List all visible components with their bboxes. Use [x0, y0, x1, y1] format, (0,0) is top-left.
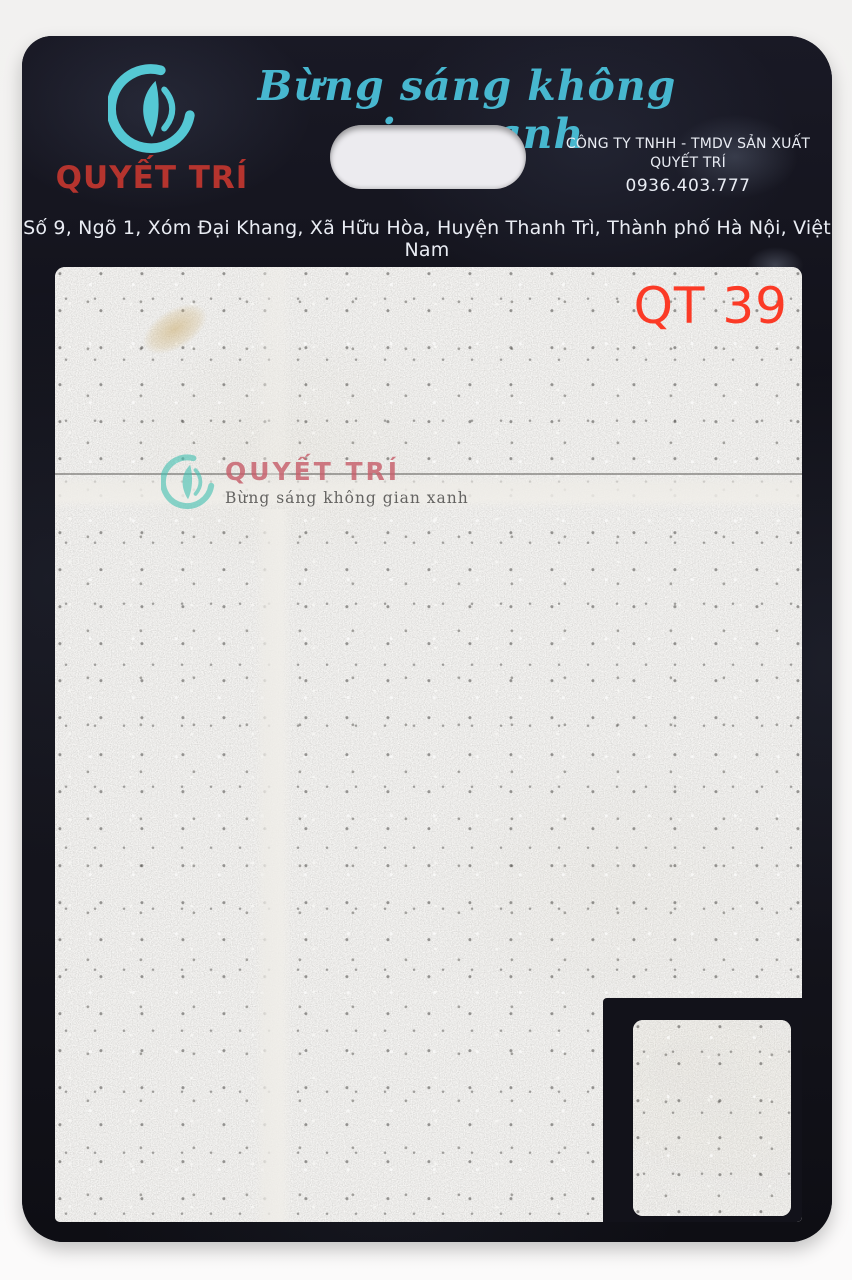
sample-board: QUYẾT TRÍ Bừng sáng không gian xanh CÔNG…	[22, 36, 832, 1242]
corner-sample-tile	[633, 1020, 791, 1216]
grout-line-vertical-upper	[255, 267, 292, 475]
grout-line-vertical-lower	[255, 509, 292, 1222]
brand-watermark: QUYẾT TRÍ Bừng sáng không gian xanh	[161, 453, 469, 511]
watermark-slogan: Bừng sáng không gian xanh	[225, 489, 469, 507]
phone-number: 0936.403.777	[540, 176, 832, 196]
brand-name: QUYẾT TRÍ	[50, 160, 254, 196]
corner-notch	[603, 998, 802, 1222]
stone-panel: QUYẾT TRÍ Bừng sáng không gian xanh QT 3…	[55, 267, 802, 1222]
watermark-brand: QUYẾT TRÍ	[225, 457, 469, 486]
handle-cutout	[330, 125, 526, 189]
watermark-logo-icon	[161, 453, 215, 511]
board-header: QUYẾT TRÍ Bừng sáng không gian xanh CÔNG…	[22, 36, 832, 268]
company-info: CÔNG TY TNHH - TMDV SẢN XUẤT QUYẾT TRÍ 0…	[540, 135, 832, 196]
company-name: CÔNG TY TNHH - TMDV SẢN XUẤT QUYẾT TRÍ	[540, 135, 832, 173]
watermark-text: QUYẾT TRÍ Bừng sáng không gian xanh	[225, 457, 469, 507]
address-line: Số 9, Ngõ 1, Xóm Đại Khang, Xã Hữu Hòa, …	[22, 217, 832, 261]
tile-granite-flecks	[633, 1020, 791, 1216]
product-code: QT 39	[634, 277, 788, 335]
brand-logo-icon	[108, 64, 196, 154]
photo-background: QUYẾT TRÍ Bừng sáng không gian xanh CÔNG…	[0, 0, 852, 1280]
